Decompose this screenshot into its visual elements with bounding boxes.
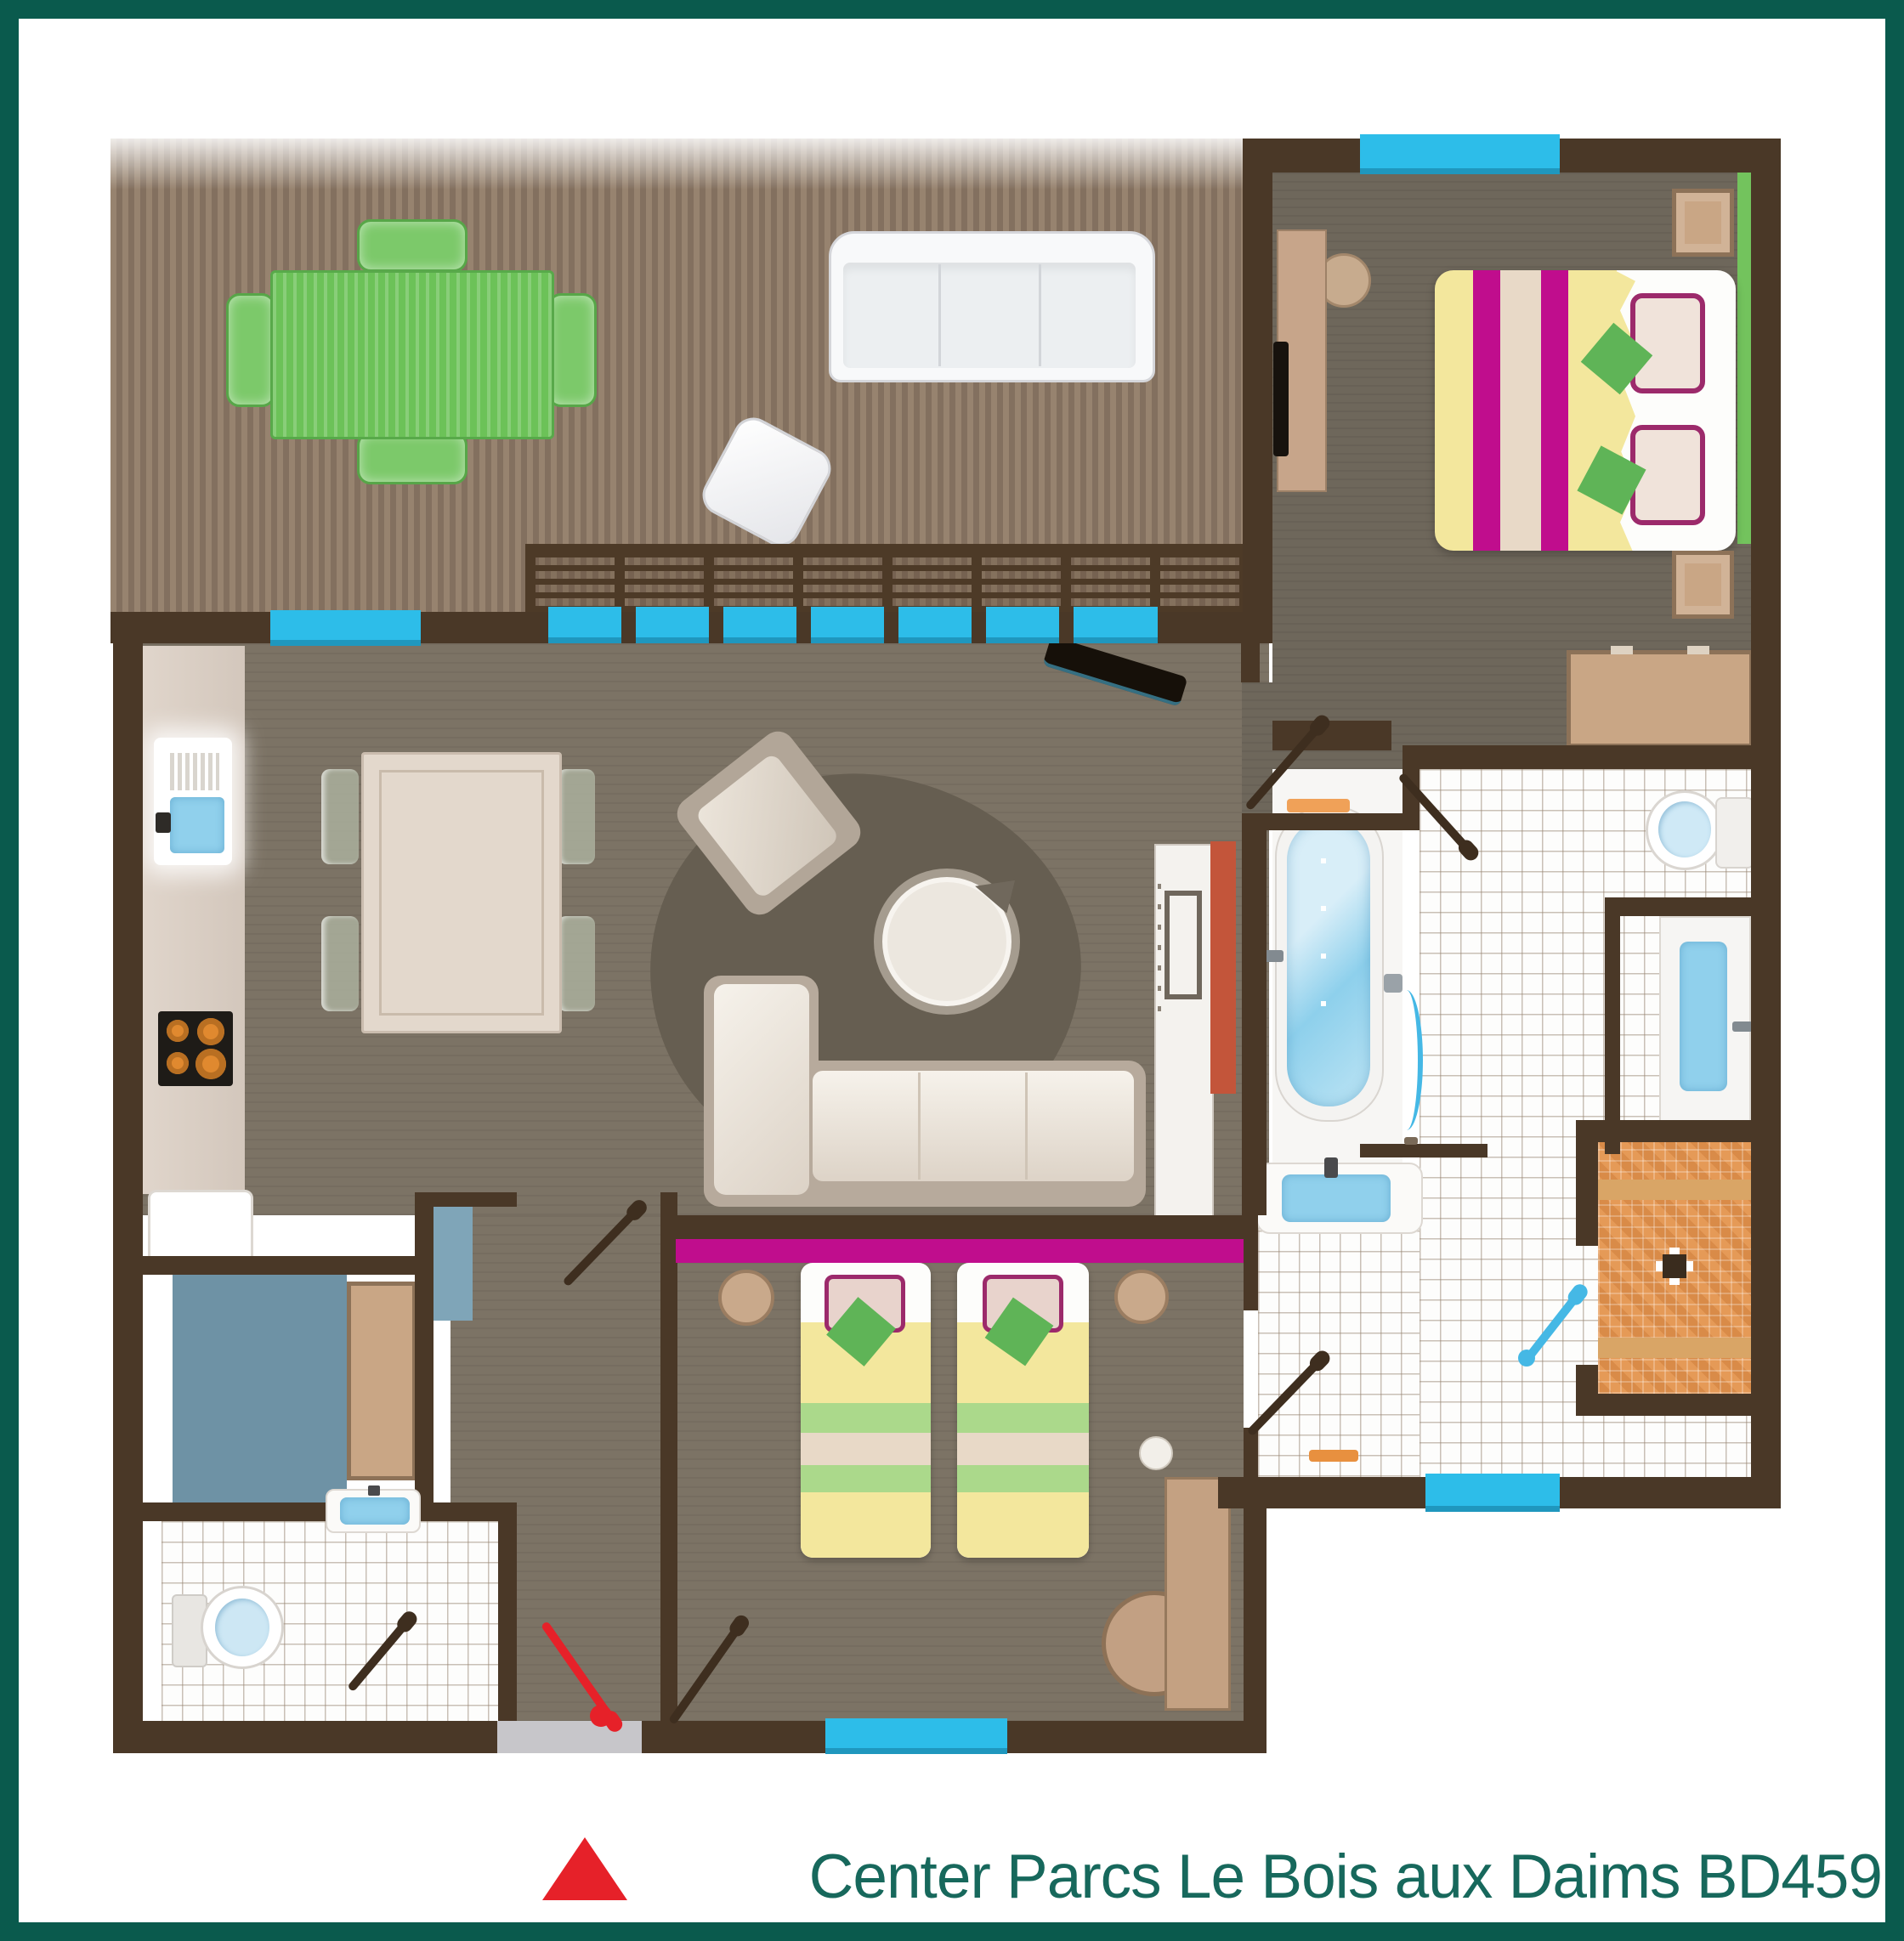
patio-glass-5 <box>898 607 972 643</box>
patio-glass-6 <box>986 607 1059 643</box>
window-kitchen <box>270 610 421 646</box>
wall-stub-hall <box>1241 642 1260 682</box>
garden-chair-bottom <box>357 432 467 484</box>
patio-glass-7 <box>1074 607 1158 643</box>
dining-chair-2 <box>321 916 359 1011</box>
bathtub-jets <box>1321 858 1326 1045</box>
dining-chair-3 <box>558 769 595 864</box>
kids-accent-wall <box>676 1239 1244 1263</box>
kids-bed-1 <box>801 1263 931 1558</box>
wardrobe-knob-1 <box>1611 646 1633 654</box>
wall-bedroom-left <box>1243 139 1272 642</box>
wall-toilet-nook <box>1605 897 1751 916</box>
toilet-bathroom <box>1646 790 1724 870</box>
garden-table <box>270 270 554 439</box>
cabinet-tray <box>1164 891 1202 999</box>
kitchen-counter <box>143 646 245 1194</box>
wall-hall-bottom <box>1242 813 1417 830</box>
wall-living-right <box>1242 830 1266 1215</box>
wall-left-outer <box>113 612 143 1753</box>
partition-handle <box>1404 1137 1418 1145</box>
entrance-door-knob <box>590 1705 612 1727</box>
window-bedroom <box>1360 134 1560 174</box>
wall-right-outer <box>1751 139 1781 1508</box>
wall-bottom-2 <box>642 1721 825 1753</box>
cabinet-dots <box>1158 884 1161 1011</box>
bed-pillow-top <box>1630 293 1705 393</box>
bedroom-tv <box>1273 342 1289 456</box>
shower-drain <box>1663 1254 1686 1278</box>
sink2-faucet-icon <box>1732 1021 1753 1032</box>
entrance-arrow-icon <box>542 1837 627 1900</box>
bath-mat-towel <box>1309 1450 1358 1462</box>
stove-cooktop <box>158 1011 233 1086</box>
kitchen-sink-basin <box>170 797 224 853</box>
wall-kids-left <box>660 1192 677 1721</box>
shower-wall-bottom <box>1576 1394 1756 1416</box>
partition-with-handle <box>1360 1144 1487 1157</box>
shower-bench-top <box>1598 1180 1751 1200</box>
sofa <box>704 976 1146 1207</box>
garden-chair-top <box>357 219 467 272</box>
wall-toiletroom-right <box>498 1502 517 1723</box>
wall-storage-top <box>143 1256 433 1275</box>
kitchen-faucet-icon <box>156 812 171 833</box>
towel-on-bathtub <box>1287 799 1350 812</box>
shower-wall-left-upper <box>1576 1120 1598 1246</box>
window-bathroom <box>1425 1474 1560 1512</box>
kids-nightstand-right <box>1114 1270 1169 1324</box>
wall-storage-right <box>415 1192 433 1504</box>
sink1-faucet-icon <box>1324 1157 1338 1178</box>
garden-chair-right <box>547 293 597 407</box>
patio-glass-3 <box>723 607 796 643</box>
wardrobe <box>1567 650 1754 748</box>
nightstand-top <box>1672 189 1734 257</box>
nightstand-bottom <box>1672 551 1734 619</box>
floorplan-page: Center Parcs Le Bois aux Daims BD459 <box>0 0 1904 1941</box>
dining-chair-4 <box>558 916 595 1011</box>
wall-bedroom-bottom-left <box>1272 721 1391 750</box>
shower-bench-bottom <box>1598 1338 1751 1358</box>
toilet-small <box>201 1586 284 1669</box>
washbasin-faucet-icon <box>368 1485 380 1496</box>
bathtub <box>1275 806 1384 1122</box>
wardrobe-knob-2 <box>1687 646 1709 654</box>
kids-nightstand-left <box>718 1270 774 1326</box>
sofa-seat-cushions <box>813 1071 1134 1181</box>
window-kids-room <box>825 1718 1007 1754</box>
wall-bathroom-top <box>1402 745 1751 769</box>
wall-bottom-1 <box>113 1721 497 1753</box>
washbasin-small <box>326 1489 421 1533</box>
wall-kids-right-mid <box>1244 1428 1258 1477</box>
wall-bottom-3 <box>1007 1721 1266 1753</box>
fireplace <box>1210 841 1236 1094</box>
plan-caption: Center Parcs Le Bois aux Daims BD459 <box>809 1842 1882 1912</box>
desk-cup <box>1139 1436 1173 1470</box>
kids-desk <box>1164 1477 1231 1711</box>
dining-table <box>361 752 562 1033</box>
wall-sink2-nook <box>1605 916 1620 1154</box>
storage-cupboard <box>347 1282 416 1480</box>
kids-bed-2 <box>957 1263 1089 1558</box>
garden-bench <box>829 231 1155 382</box>
storage-room-floor <box>173 1275 347 1502</box>
vanity-sink-2 <box>1659 916 1751 1140</box>
patio-glass-2 <box>636 607 709 643</box>
utility-cabinet <box>433 1205 473 1321</box>
vanity-sink-1 <box>1256 1163 1423 1234</box>
dishwasher <box>148 1190 253 1265</box>
sofa-chaise-cushion <box>714 984 809 1195</box>
shower-head-icon <box>1518 1350 1535 1367</box>
wall-kids-right-upper <box>1244 1215 1258 1310</box>
wall-kids-right-lower <box>1244 1508 1266 1753</box>
double-bed-duvet <box>1435 270 1617 551</box>
patio-glass-1 <box>548 607 621 643</box>
garden-chair-left <box>226 293 275 407</box>
kitchen-sink-unit <box>154 738 232 865</box>
toilet-tank <box>1715 797 1754 869</box>
wall-kids-top <box>660 1215 1258 1239</box>
dining-chair-1 <box>321 769 359 864</box>
shower-wall-top <box>1576 1120 1756 1142</box>
patio-glass-4 <box>811 607 884 643</box>
